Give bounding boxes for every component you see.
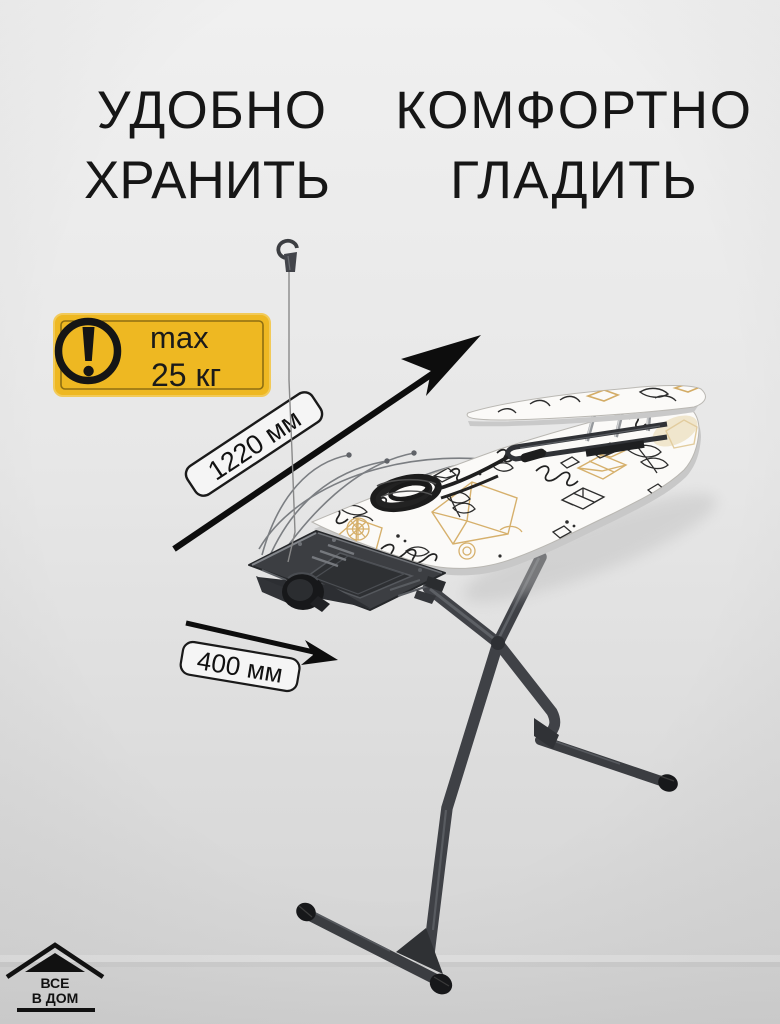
- svg-text:ГЛАДИТЬ: ГЛАДИТЬ: [450, 151, 698, 210]
- svg-text:25 кг: 25 кг: [151, 357, 221, 393]
- svg-text:max: max: [150, 320, 209, 355]
- svg-text:КОМФОРТНО: КОМФОРТНО: [395, 81, 753, 140]
- svg-text:УДОБНО: УДОБНО: [97, 81, 328, 140]
- svg-text:ХРАНИТЬ: ХРАНИТЬ: [84, 151, 330, 210]
- svg-text:ВСЕ: ВСЕ: [40, 975, 69, 991]
- svg-text:В ДОМ: В ДОМ: [32, 990, 79, 1006]
